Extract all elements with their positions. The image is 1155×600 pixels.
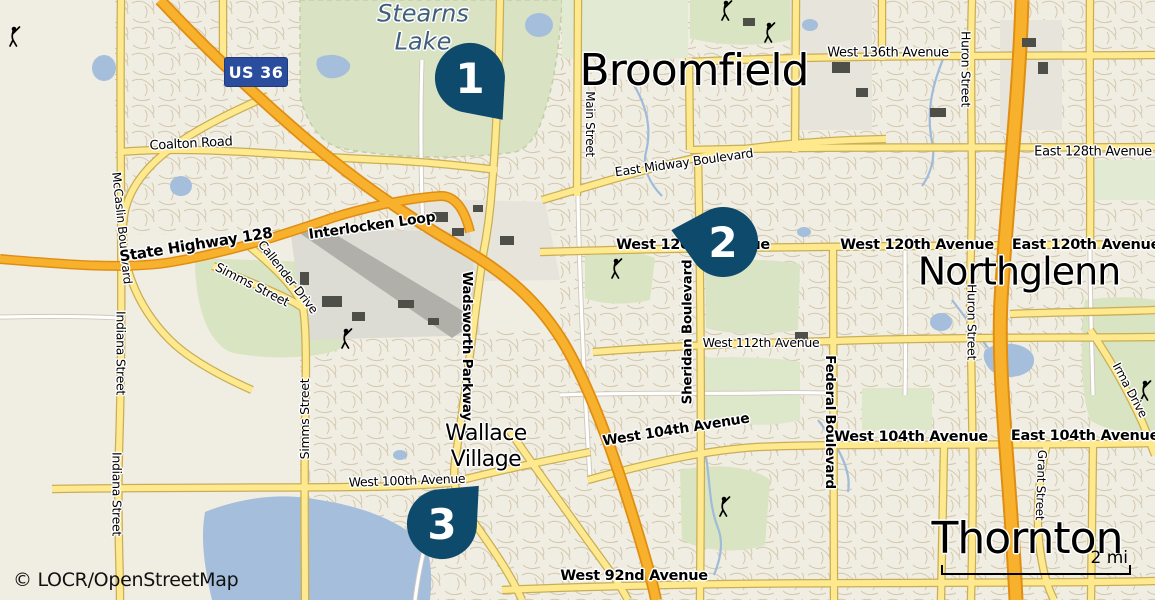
road-label-huron-street-mid: Huron Street bbox=[965, 284, 978, 360]
road-label-east-120th-avenue: East 120th Avenue bbox=[1012, 238, 1155, 253]
road-label-simms-street-lower: Simms Street bbox=[299, 379, 312, 460]
map-base-layer bbox=[0, 0, 1155, 600]
road-label-west-104th-avenue-mid: West 104th Avenue bbox=[834, 430, 988, 445]
road-label-west-120th-avenue-right: West 120th Avenue bbox=[840, 238, 994, 253]
marker-2-number: 2 bbox=[708, 218, 737, 267]
road-label-west-112th-avenue: West 112th Avenue bbox=[703, 337, 820, 350]
scale-bar-label: 2 mi bbox=[1040, 548, 1128, 568]
road-label-indiana-street-upper: Indiana Street bbox=[114, 311, 127, 395]
road-label-west-136th-avenue: West 136th Avenue bbox=[827, 47, 949, 60]
road-label-main-street: Main Street bbox=[584, 91, 596, 157]
road-label-east-128th-avenue: East 128th Avenue bbox=[1034, 146, 1152, 159]
road-label-sheridan-boulevard: Sheridan Boulevard bbox=[681, 260, 695, 405]
road-label-grant-street: Grant Street bbox=[1034, 450, 1048, 521]
road-label-indiana-street-lower: Indiana Street bbox=[110, 452, 123, 536]
label-city-northglenn: Northglenn bbox=[918, 250, 1121, 295]
label-wallace-village: Wallace Village bbox=[445, 421, 527, 473]
road-label-wadsworth-parkway: Wadsworth Parkway bbox=[459, 271, 473, 421]
label-city-broomfield: Broomfield bbox=[580, 45, 809, 97]
map-viewport[interactable]: Stearns Lake Broomfield Northglenn Thorn… bbox=[0, 0, 1155, 600]
us-36-highway-shield: US 36 bbox=[224, 57, 288, 87]
marker-3-number: 3 bbox=[427, 500, 456, 549]
road-label-west-92nd-avenue: West 92nd Avenue bbox=[560, 569, 708, 584]
marker-1-number: 1 bbox=[455, 54, 484, 103]
map-attribution: © LOCR/OpenStreetMap bbox=[13, 569, 238, 591]
road-label-east-104th-avenue: East 104th Avenue bbox=[1011, 429, 1155, 444]
road-label-federal-boulevard: Federal Boulevard bbox=[822, 355, 836, 489]
road-label-huron-street-top: Huron Street bbox=[959, 31, 972, 107]
